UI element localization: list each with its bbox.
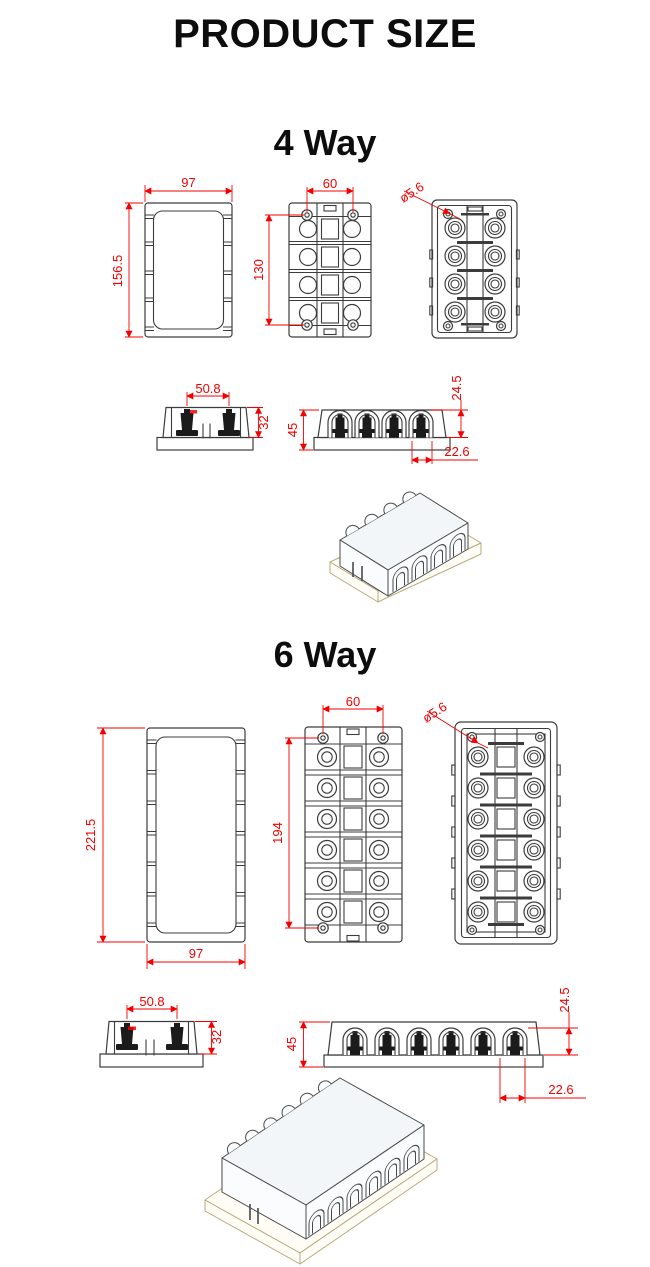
fuse-arch — [471, 1028, 495, 1055]
screw-hole — [318, 733, 328, 743]
terminal-bolt — [445, 218, 465, 238]
sixway-cover-top-view — [147, 728, 245, 942]
terminal-hole — [300, 305, 317, 322]
corner-hole — [497, 210, 506, 219]
dim-label: 22.6 — [548, 1082, 573, 1097]
terminal-bolt — [445, 274, 465, 294]
dim-label: ø5.6 — [397, 179, 427, 206]
corner-hole — [497, 322, 506, 331]
screw-hole — [348, 320, 358, 330]
terminal-bolt — [524, 778, 544, 798]
dim-4way-cover-height: 156.5 — [110, 203, 143, 337]
terminal-bolt — [524, 747, 544, 767]
terminal-nut — [370, 903, 389, 922]
fourway-isometric-view — [330, 489, 481, 602]
fourway-front-view — [314, 410, 450, 450]
product-size-sheet: PRODUCT SIZE 4 Way 6 Way — [0, 0, 650, 1267]
terminal-bolt — [468, 778, 488, 798]
terminal-bolt — [445, 302, 465, 322]
terminal-hole — [300, 249, 317, 266]
terminal-nut — [370, 872, 389, 891]
corner-hole — [536, 733, 545, 742]
dim-label: 60 — [323, 176, 337, 191]
dim-6way-overall-height: 45 — [284, 1022, 330, 1067]
terminal-nut — [318, 841, 337, 860]
fuse-arch — [382, 411, 406, 438]
dim-label: 32 — [256, 415, 271, 429]
dim-6way-stud-pitch: 50.8 — [127, 994, 177, 1019]
terminal-nut — [370, 748, 389, 767]
dim-4way-cover-width: 97 — [145, 175, 232, 202]
dim-6way-cover-height: 221.5 — [83, 728, 145, 942]
terminal-nut — [318, 903, 337, 922]
dim-label: 22.6 — [444, 444, 469, 459]
print-mark — [128, 1027, 136, 1031]
sixway-isometric-view — [205, 1078, 437, 1264]
terminal-nut — [318, 748, 337, 767]
dim-label: 194 — [270, 822, 285, 844]
fourway-cover-top-view — [145, 203, 232, 337]
fuse-arch — [375, 1028, 399, 1055]
dim-label: 45 — [285, 423, 300, 437]
terminal-bolt — [468, 747, 488, 767]
dim-label: 130 — [251, 259, 266, 281]
terminal-nut — [370, 841, 389, 860]
terminal-hole — [344, 277, 361, 294]
dim-4way-body-height: 32 — [247, 408, 271, 438]
screw-hole — [378, 733, 388, 743]
dim-4way-stud-pitch: 50.8 — [187, 381, 229, 406]
fuse-arch — [407, 1028, 431, 1055]
terminal-hole — [300, 277, 317, 294]
dim-label: 24.5 — [557, 987, 572, 1012]
fourway-base-top-view — [289, 203, 371, 337]
terminal-nut — [318, 872, 337, 891]
fourway-end-view — [157, 408, 253, 451]
terminal-bolt — [485, 246, 505, 266]
dim-label: 221.5 — [83, 819, 98, 852]
terminal-bolt — [485, 218, 505, 238]
corner-hole — [536, 926, 545, 935]
dim-label: 32 — [209, 1030, 224, 1044]
terminal-bolt — [468, 840, 488, 860]
terminal-bolt — [485, 302, 505, 322]
terminal-hole — [344, 305, 361, 322]
dim-label: 156.5 — [110, 255, 125, 288]
screw-hole — [318, 923, 328, 933]
dim-label: 24.5 — [449, 375, 464, 400]
terminal-nut — [318, 779, 337, 798]
terminal-bolt — [468, 871, 488, 891]
print-mark — [190, 410, 197, 414]
dim-6way-body-height: 32 — [195, 1022, 224, 1055]
technical-drawing-canvas: 97 156.5 — [0, 0, 650, 1267]
screw-hole — [378, 923, 388, 933]
terminal-bolt — [485, 274, 505, 294]
sixway-base-top-view — [305, 727, 402, 942]
terminal-bolt — [445, 246, 465, 266]
terminal-bolt — [524, 871, 544, 891]
corner-hole — [444, 322, 453, 331]
dim-6way-cover-width: 97 — [147, 944, 245, 969]
fuse-arch — [439, 1028, 463, 1055]
dim-label: ø5.6 — [420, 699, 450, 726]
fuse-arch — [355, 411, 379, 438]
dim-label: 60 — [346, 694, 360, 709]
dim-label: 97 — [189, 946, 203, 961]
dim-label: 97 — [181, 175, 195, 190]
fourway-bottom-view — [430, 200, 519, 338]
terminal-bolt — [524, 809, 544, 829]
terminal-bolt — [524, 902, 544, 922]
terminal-hole — [344, 249, 361, 266]
terminal-hole — [344, 221, 361, 238]
sixway-end-view — [100, 1022, 203, 1068]
terminal-nut — [370, 810, 389, 829]
terminal-bolt — [468, 809, 488, 829]
terminal-nut — [318, 810, 337, 829]
terminal-nut — [370, 779, 389, 798]
dim-label: 50.8 — [139, 994, 164, 1009]
sixway-front-view — [324, 1022, 543, 1067]
corner-hole — [468, 926, 477, 935]
fuse-arch — [343, 1028, 367, 1055]
dim-label: 50.8 — [195, 381, 220, 396]
fuse-arch — [409, 411, 433, 438]
terminal-bolt — [468, 902, 488, 922]
terminal-hole — [300, 221, 317, 238]
fuse-arch — [328, 411, 352, 438]
terminal-bolt — [524, 840, 544, 860]
dim-label: 45 — [284, 1037, 299, 1051]
fuse-arch — [503, 1028, 527, 1055]
sixway-bottom-view — [452, 722, 560, 944]
